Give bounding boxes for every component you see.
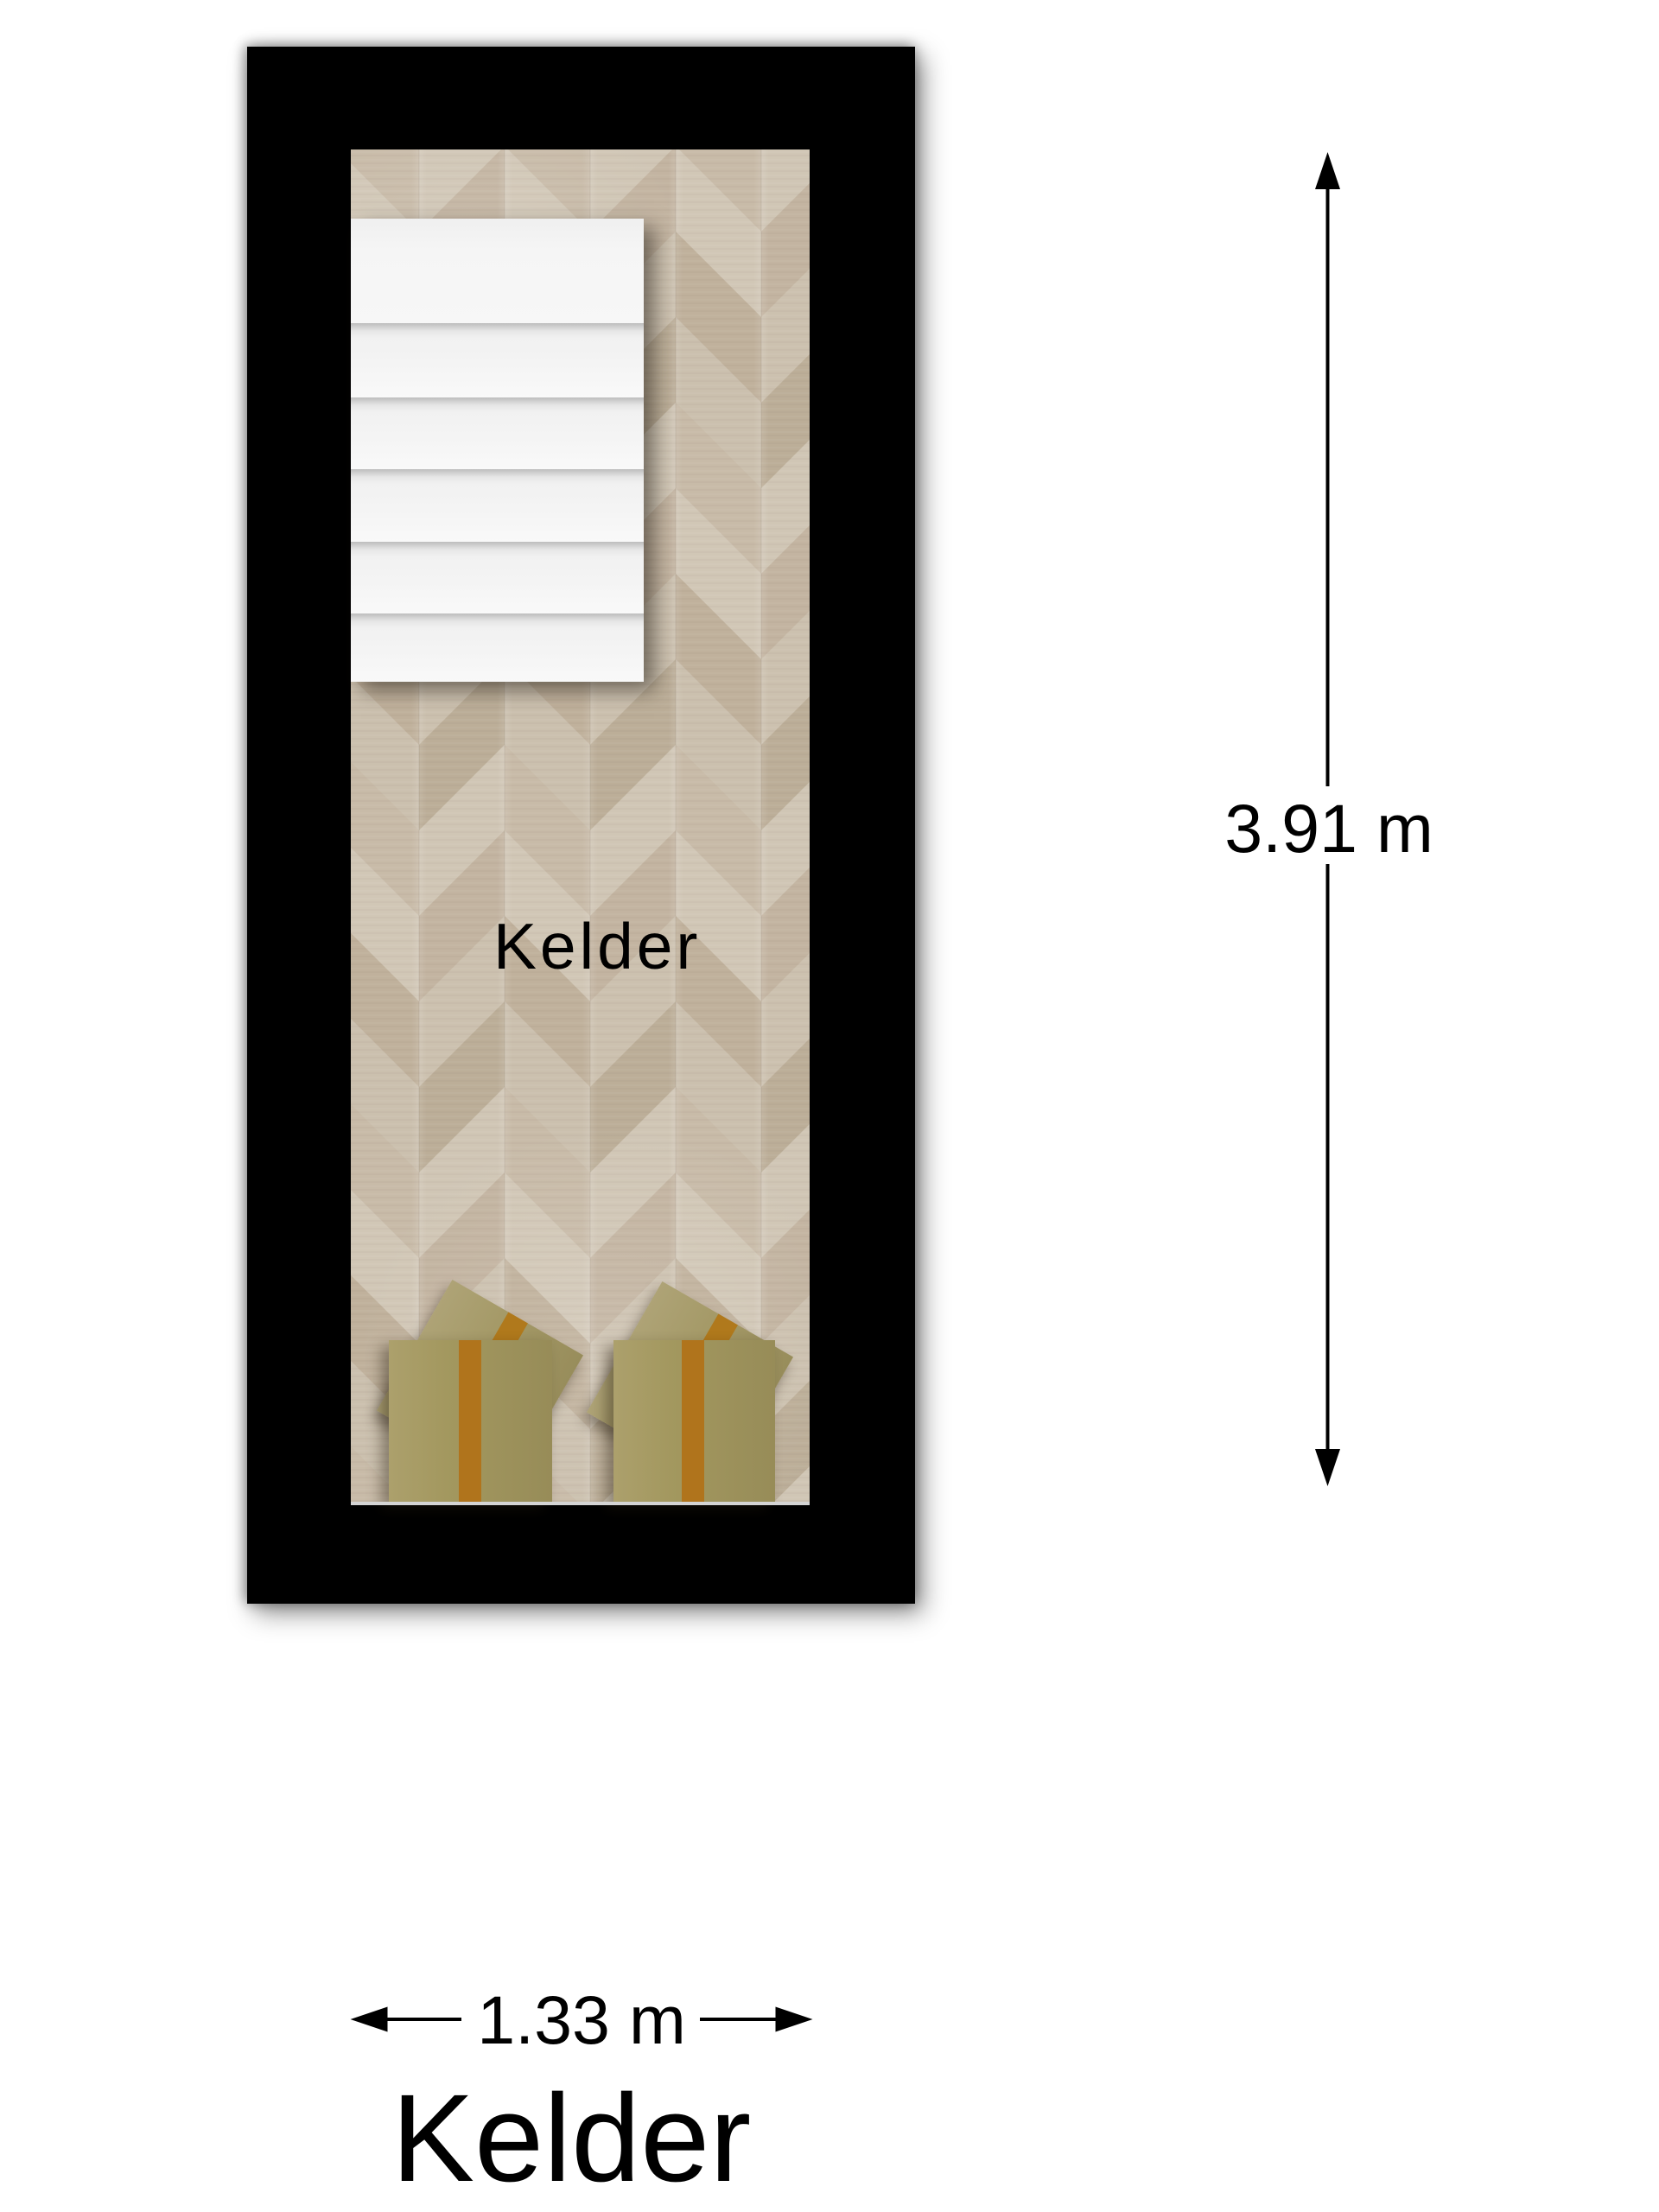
- svg-text:3.91 m: 3.91 m: [1224, 790, 1433, 867]
- svg-text:1.33 m: 1.33 m: [477, 1981, 686, 2058]
